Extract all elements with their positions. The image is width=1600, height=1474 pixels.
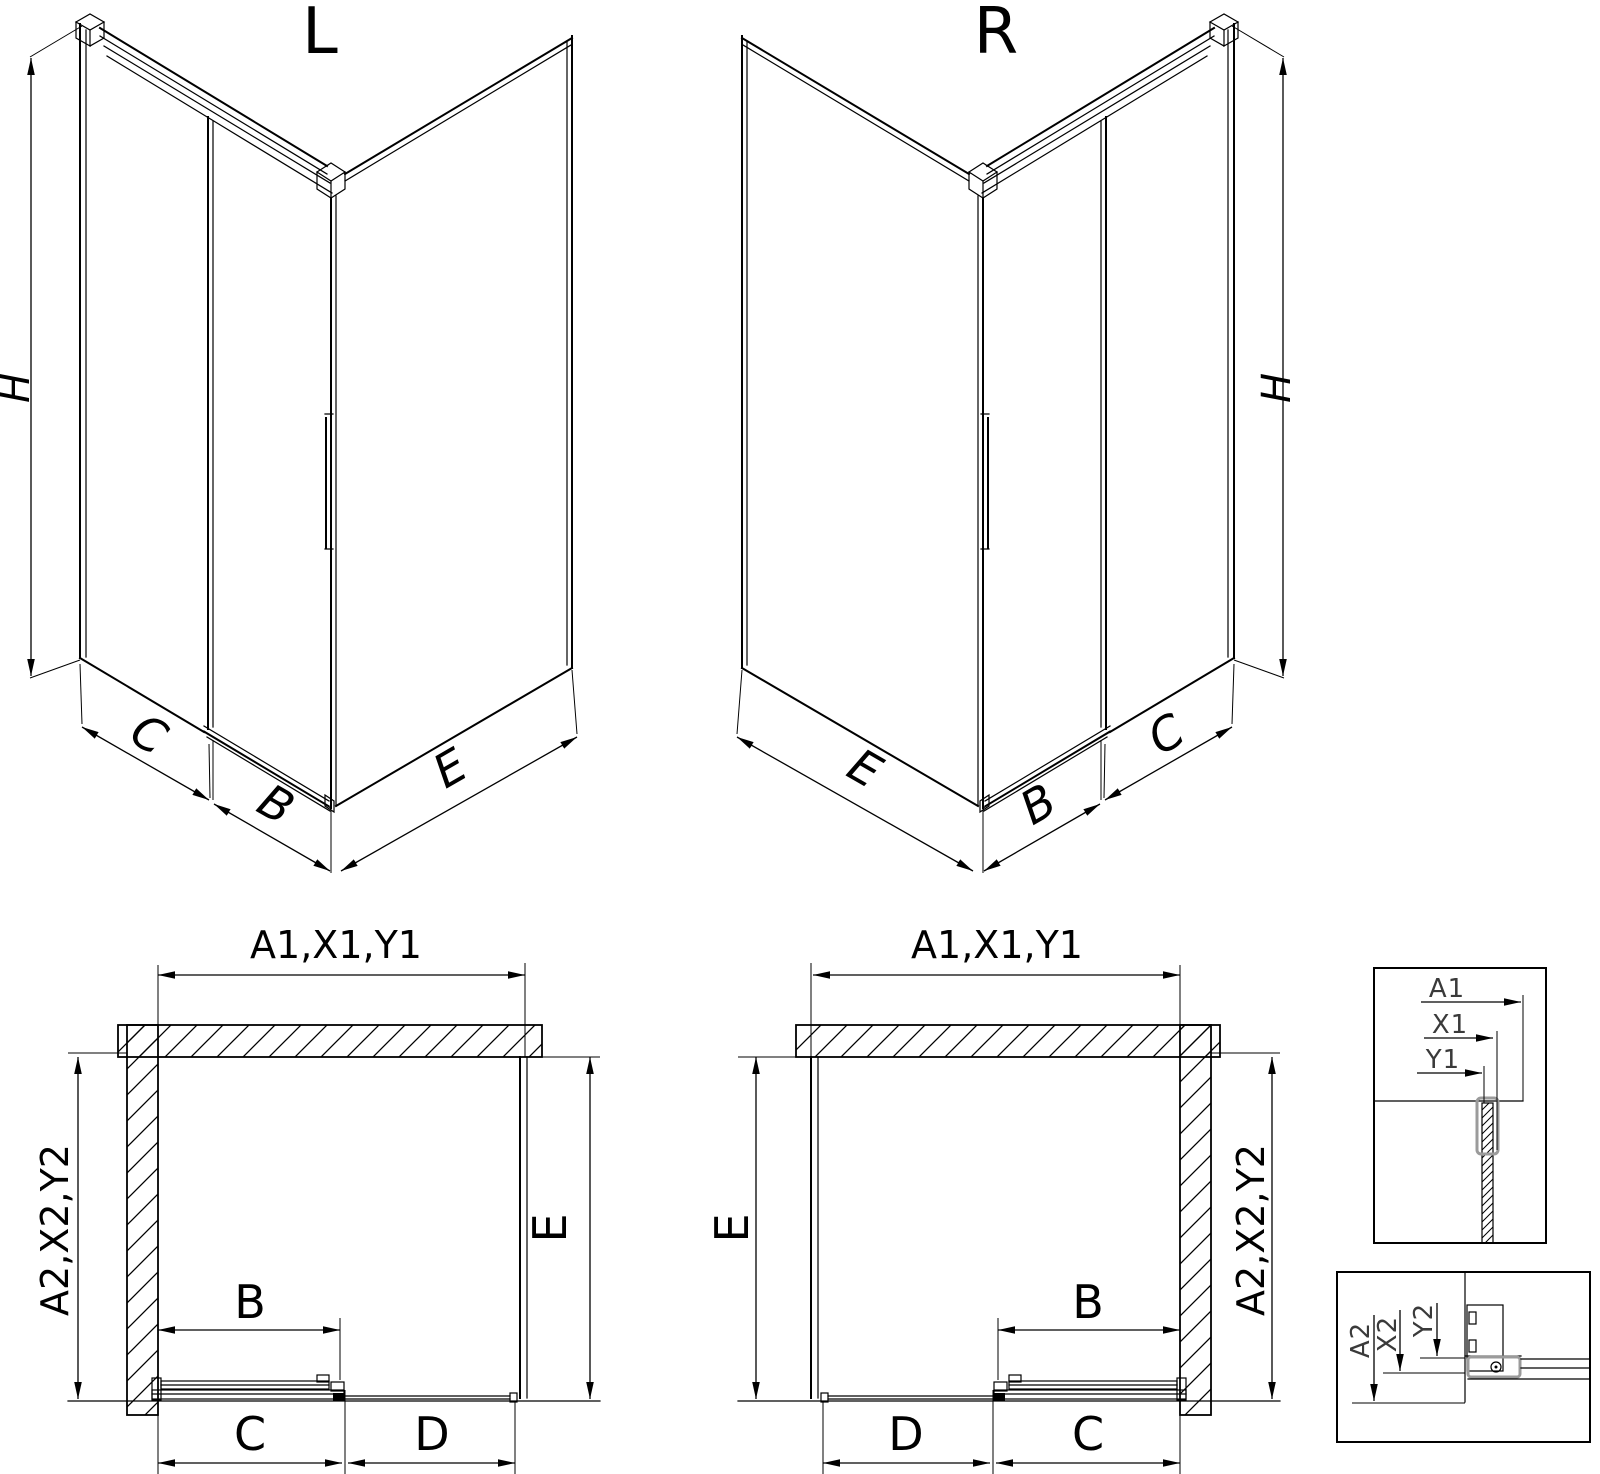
door-profile-section [1467, 1305, 1503, 1371]
variant-label-right: R [974, 0, 1018, 69]
detail-label-x2: X2 [1373, 1316, 1403, 1352]
wall-top-right-plan [796, 1025, 1220, 1057]
glass-pane-section [1482, 1103, 1493, 1243]
dim-label-width-left-plan: A1,X1,Y1 [250, 923, 422, 967]
dim-label-door-b-left: B [249, 773, 303, 836]
iso-right-lineart [737, 14, 1284, 873]
dim-label-fixed-d-right-plan: D [888, 1407, 923, 1461]
plan-view-left: A1,X1,Y1 A2,X2,Y2 E B C D [33, 923, 600, 1474]
dim-label-fixed-d-left-plan: D [414, 1407, 449, 1461]
dim-label-side-e-left-plan: E [523, 1213, 577, 1242]
iso-view-right: R H E B C [737, 0, 1300, 873]
detail-roller-section: A2 X2 Y2 [1337, 1272, 1590, 1442]
dim-label-door-c-left-plan: C [234, 1407, 266, 1461]
drawing-svg: L H C B E R H E B C [0, 0, 1600, 1474]
dim-label-door-b-right: B [1011, 773, 1065, 836]
dim-label-side-e-left: E [424, 737, 476, 798]
dim-label-depth-right-plan: A2,X2,Y2 [1229, 1144, 1273, 1316]
iso-view-left: L H C B E [0, 0, 577, 873]
detail-label-a2: A2 [1346, 1322, 1376, 1358]
detail-label-a1: A1 [1429, 974, 1465, 1004]
dim-label-opening-b-right-plan: B [1072, 1275, 1104, 1329]
dim-label-side-e-right: E [839, 737, 891, 798]
dim-label-panel-c-right: C [1139, 703, 1194, 766]
detail-label-x1: X1 [1432, 1010, 1468, 1040]
wall-top-left-plan [118, 1025, 542, 1057]
plan-view-right: A1,X1,Y1 A2,X2,Y2 E B D C [705, 923, 1280, 1474]
detail-glass-section: A1 X1 Y1 [1374, 968, 1546, 1243]
shower-enclosure-technical-drawing: L H C B E R H E B C [0, 0, 1600, 1474]
wall-side-left-plan [127, 1025, 158, 1415]
detail-label-y1: Y1 [1425, 1045, 1460, 1075]
dim-label-height-left: H [0, 373, 39, 403]
roller-bracket [1468, 1357, 1520, 1377]
iso-left-lineart [30, 14, 577, 873]
dim-label-opening-b-left-plan: B [234, 1275, 266, 1329]
dim-label-depth-left-plan: A2,X2,Y2 [33, 1144, 77, 1316]
dim-label-width-right-plan: A1,X1,Y1 [911, 923, 1083, 967]
dim-label-panel-c-left: C [122, 703, 177, 766]
variant-label-left: L [302, 0, 338, 69]
detail-label-y2: Y2 [1409, 1303, 1439, 1338]
dim-label-height-right: H [1254, 373, 1300, 403]
dim-label-side-e-right-plan: E [705, 1213, 759, 1242]
dim-label-door-c-right-plan: C [1072, 1407, 1104, 1461]
wall-side-right-plan [1180, 1025, 1211, 1415]
